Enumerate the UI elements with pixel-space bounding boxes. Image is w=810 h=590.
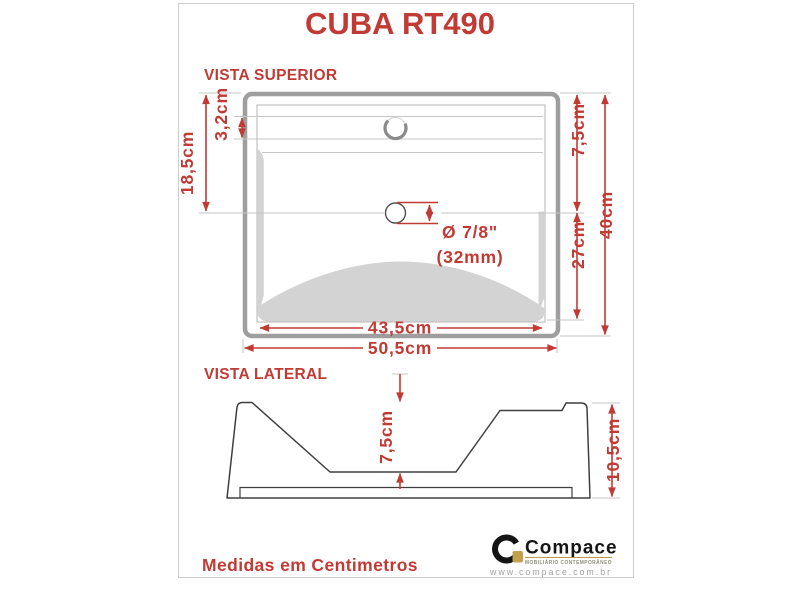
drain-diameter-mm: (32mm) [436,247,503,267]
dim-right-total: 40cm [596,191,616,239]
drain-hole [386,203,406,223]
brand-tagline: MOBILIÁRIO CONTEMPORÂNEO [525,559,612,566]
brand-name: Compace [525,538,618,559]
diagram-canvas: CUBA RT490 VISTA SUPERIOR [0,0,810,590]
dim-total-height: 10,5cm [603,418,623,482]
dim-bowl-depth: 7,5cm [376,410,396,464]
dim-right-bowl: 27cm [568,221,588,269]
side-view-label: VISTA LATERAL [204,366,327,383]
top-view-label: VISTA SUPERIOR [204,67,337,84]
basin-right-wall-shade [539,212,545,314]
sink-dimension-sheet: CUBA RT490 VISTA SUPERIOR [0,0,810,590]
dim-inner-width: 43,5cm [368,318,432,338]
dim-right-back: 7,5cm [568,103,588,157]
dim-faucet-hole: 3,2cm [211,87,231,141]
brand-website: www.compace.com.br [489,567,612,577]
dim-outer-width: 50,5cm [368,338,432,358]
compace-gold-square-icon [513,551,524,563]
basin-left-wall-shade [258,149,264,318]
dim-left-depth: 18,5cm [177,131,197,195]
page-title: CUBA RT490 [305,6,495,41]
drain-diameter-inches: Ø 7/8" [442,222,498,242]
units-note: Medidas em Centimetros [202,555,418,575]
